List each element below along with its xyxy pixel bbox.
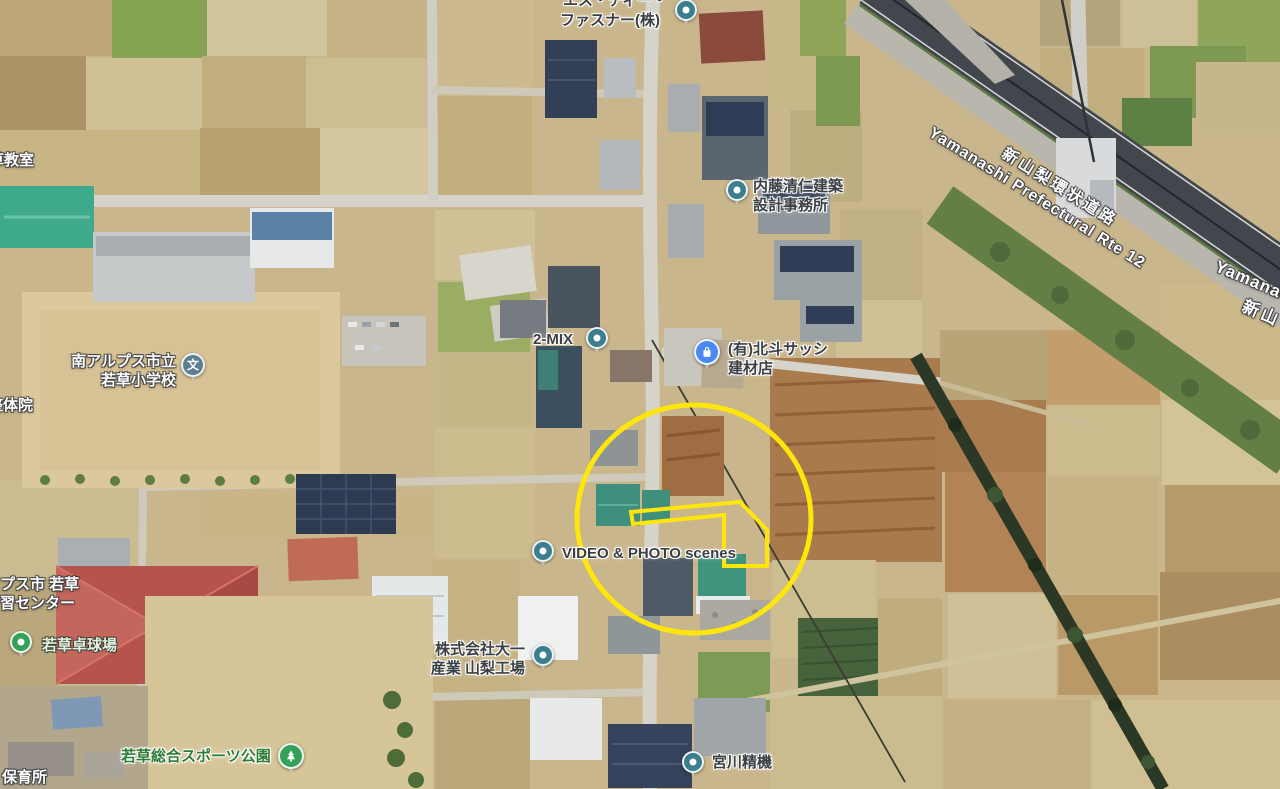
poi-dot-icon — [532, 644, 554, 666]
poi-label-kusa-classroom[interactable]: 草教室 — [0, 151, 34, 170]
poi-label-seitai-clinic[interactable]: 整体院 — [0, 396, 33, 415]
poi-marker-video-photo-scenes[interactable] — [532, 540, 554, 562]
poi-label-two-mix[interactable]: 2-MIX — [533, 330, 573, 349]
poi-marker-miyagawa-seiki[interactable] — [682, 751, 704, 773]
poi-label-miyagawa-seiki[interactable]: 宮川精機 — [712, 753, 772, 772]
poi-label-wakakusa-table-tennis[interactable]: 若草卓球場 — [42, 636, 117, 655]
poi-marker-naito-architect[interactable] — [726, 179, 748, 201]
poi-label-sd-fastener-line1[interactable]: エス・ディー・ — [563, 0, 667, 10]
poi-dot-icon — [586, 327, 608, 349]
poi-marker-sd-fastener[interactable] — [675, 0, 697, 21]
satellite-map[interactable]: 新山梨環状道路 Yamanashi Prefectural Rte 12 Yam… — [0, 0, 1280, 789]
poi-marker-daiichi-sangyo[interactable] — [532, 644, 554, 666]
poi-dot-icon — [726, 179, 748, 201]
poi-label-hokuto-sash[interactable]: (有)北斗サッシ 建材店 — [728, 340, 828, 378]
satellite-imagery — [0, 0, 1280, 789]
poi-label-daiichi-sangyo[interactable]: 株式会社大一 産業 山梨工場 — [421, 640, 525, 678]
poi-label-nursery[interactable]: 保育所 — [2, 768, 47, 787]
poi-marker-wakakusa-table-tennis[interactable] — [10, 631, 32, 653]
poi-marker-two-mix[interactable] — [586, 327, 608, 349]
poi-label-gakushu-center[interactable]: プス市 若草 習センター — [0, 575, 79, 613]
poi-label-wakakusa-elementary[interactable]: 南アルプス市立 若草小学校 — [60, 352, 176, 390]
school-icon: 文 — [181, 353, 205, 377]
poi-dot-icon — [675, 0, 697, 21]
poi-label-wakakusa-sports-park[interactable]: 若草総合スポーツ公園 — [121, 747, 271, 766]
poi-label-sd-fastener-line2[interactable]: ファスナー(株) — [560, 11, 660, 30]
poi-dot-icon — [10, 631, 32, 653]
poi-marker-hokuto-sash[interactable] — [694, 339, 720, 365]
poi-label-naito-architect[interactable]: 内藤清仁建築 設計事務所 — [753, 177, 843, 215]
poi-dot-icon — [682, 751, 704, 773]
shopping-bag-icon — [694, 339, 720, 365]
poi-marker-wakakusa-elementary[interactable]: 文 — [181, 353, 205, 377]
poi-label-video-photo-scenes[interactable]: VIDEO & PHOTO scenes — [562, 544, 736, 563]
poi-marker-wakakusa-sports-park[interactable] — [278, 743, 304, 769]
tree-icon — [278, 743, 304, 769]
poi-dot-icon — [532, 540, 554, 562]
